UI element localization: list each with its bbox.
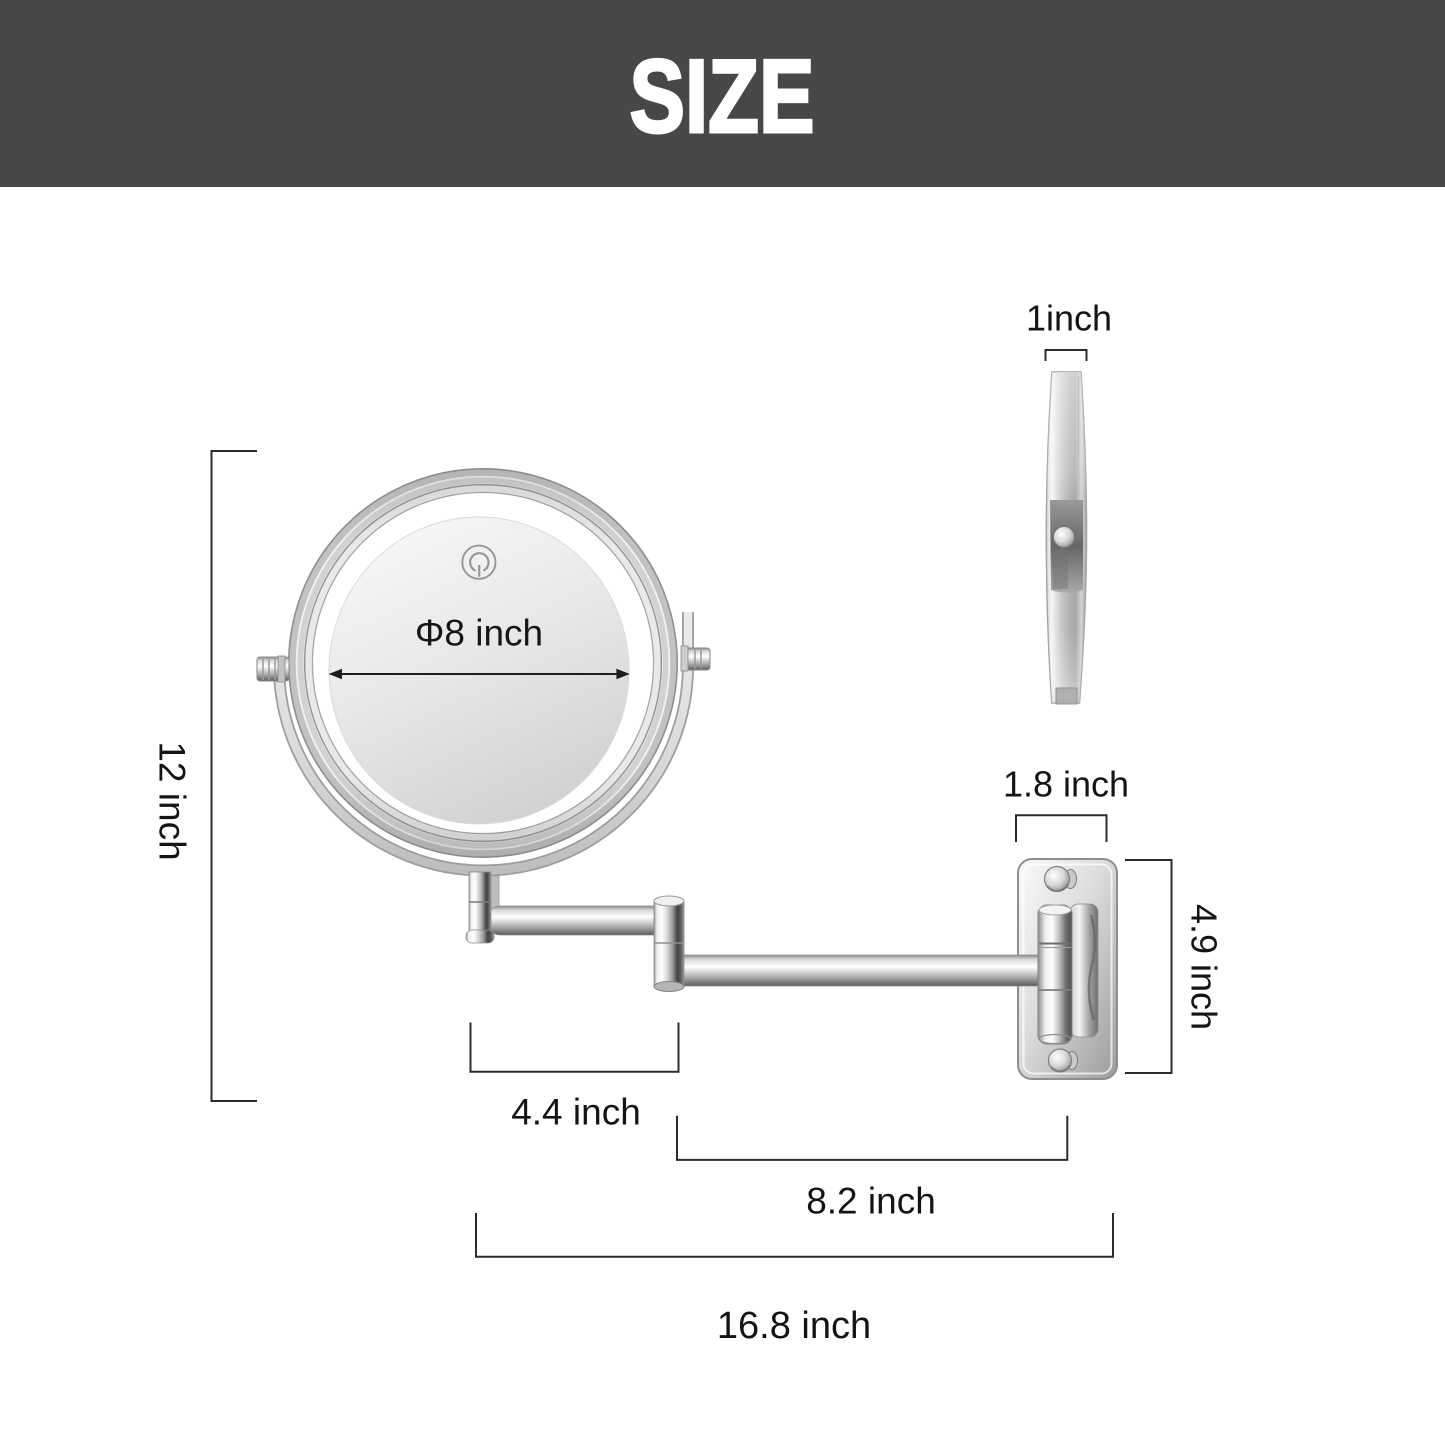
svg-text:1.8 inch: 1.8 inch	[1003, 764, 1129, 805]
svg-text:4.4 inch: 4.4 inch	[511, 1092, 641, 1133]
svg-text:Φ8 inch: Φ8 inch	[415, 613, 543, 654]
svg-text:8.2 inch: 8.2 inch	[806, 1181, 936, 1222]
svg-text:12 inch: 12 inch	[152, 741, 193, 860]
svg-text:4.9 inch: 4.9 inch	[1184, 904, 1225, 1030]
svg-text:16.8 inch: 16.8 inch	[717, 1305, 871, 1347]
svg-text:SIZE: SIZE	[630, 38, 815, 154]
svg-text:1inch: 1inch	[1026, 298, 1112, 339]
